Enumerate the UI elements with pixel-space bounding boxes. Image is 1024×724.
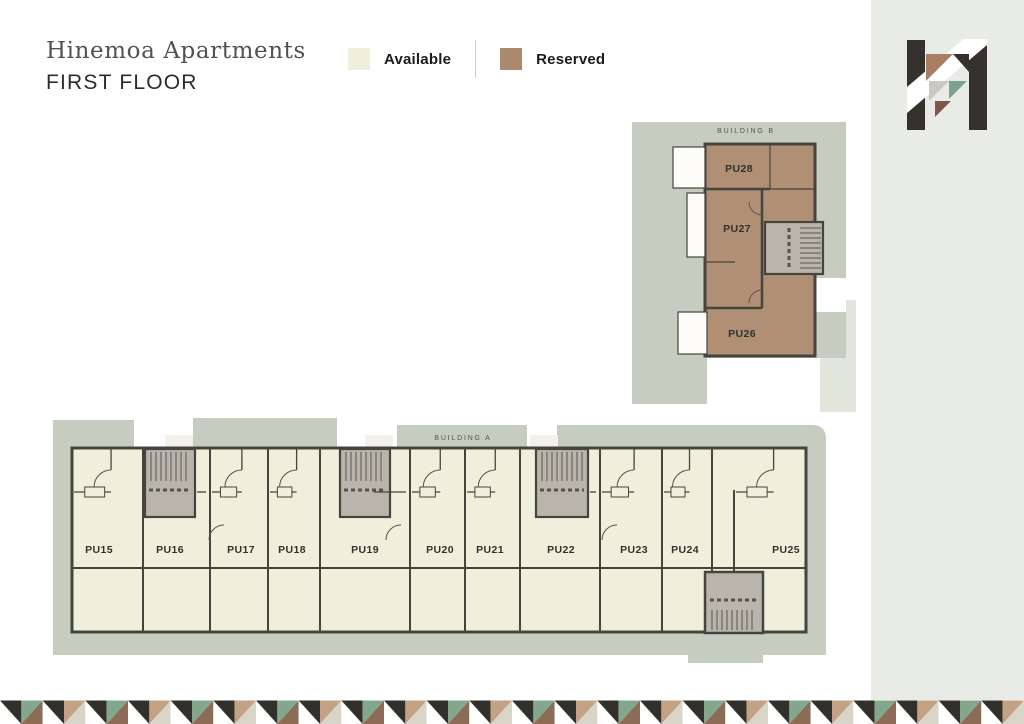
unit-pu28[interactable]: PU28 <box>705 144 815 189</box>
building-b: BUILDING BPU28PU27PU26 <box>632 122 856 412</box>
unit-label: PU25 <box>772 544 800 556</box>
unit-label: PU24 <box>671 544 699 556</box>
building-b-label: BUILDING B <box>717 128 775 135</box>
unit-label: PU15 <box>85 544 113 556</box>
unit-pu26[interactable]: PU26 <box>705 308 815 356</box>
unit-pu25[interactable]: PU25 <box>734 448 806 632</box>
unit-label: PU22 <box>547 544 575 556</box>
unit-pu27[interactable]: PU27 <box>705 189 815 308</box>
unit-label: PU27 <box>723 223 751 235</box>
unit-label: PU26 <box>728 328 756 340</box>
balcony <box>687 193 705 257</box>
unit-pu17[interactable]: PU17 <box>210 448 268 632</box>
unit-pu15[interactable]: PU15 <box>72 448 143 632</box>
unit-pu20[interactable]: PU20 <box>410 448 465 632</box>
unit-label: PU18 <box>278 544 306 556</box>
unit-label: PU16 <box>156 544 184 556</box>
unit-label: PU19 <box>351 544 379 556</box>
unit-label: PU28 <box>725 163 753 175</box>
unit-label: PU21 <box>476 544 504 556</box>
unit-pu18[interactable]: PU18 <box>268 448 320 632</box>
balcony <box>365 435 393 447</box>
unit-pu24[interactable]: PU24 <box>662 448 712 632</box>
unit-label: PU23 <box>620 544 648 556</box>
unit-pu23[interactable]: PU23 <box>600 448 662 632</box>
unit-label: PU17 <box>227 544 255 556</box>
building-a-label: BUILDING A <box>434 435 491 442</box>
unit-pu19[interactable]: PU19 <box>320 448 410 632</box>
balcony <box>673 147 705 188</box>
floor-plan-canvas: BUILDING BPU28PU27PU26BUILDING APU15PU16… <box>0 0 1024 724</box>
unit-label: PU20 <box>426 544 454 556</box>
balcony <box>530 435 558 447</box>
footer-pattern <box>0 701 1024 724</box>
balcony <box>678 312 707 354</box>
unit-pu21[interactable]: PU21 <box>465 448 520 632</box>
balcony <box>165 435 193 447</box>
building-a: BUILDING APU15PU16PU17PU18PU19PU20PU21PU… <box>53 418 826 663</box>
